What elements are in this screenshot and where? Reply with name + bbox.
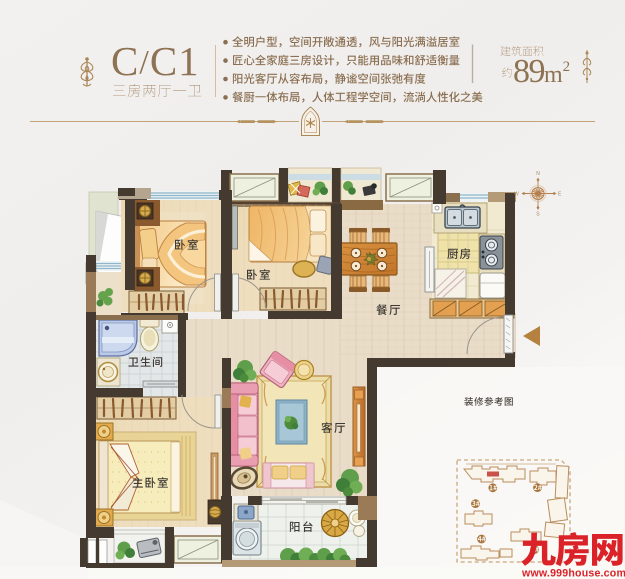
- svg-text:N: N: [536, 171, 540, 177]
- svg-text:W: W: [514, 192, 519, 198]
- svg-text:C/C1: C/C1: [111, 38, 200, 84]
- svg-text:www.999house.com: www.999house.com: [521, 568, 625, 579]
